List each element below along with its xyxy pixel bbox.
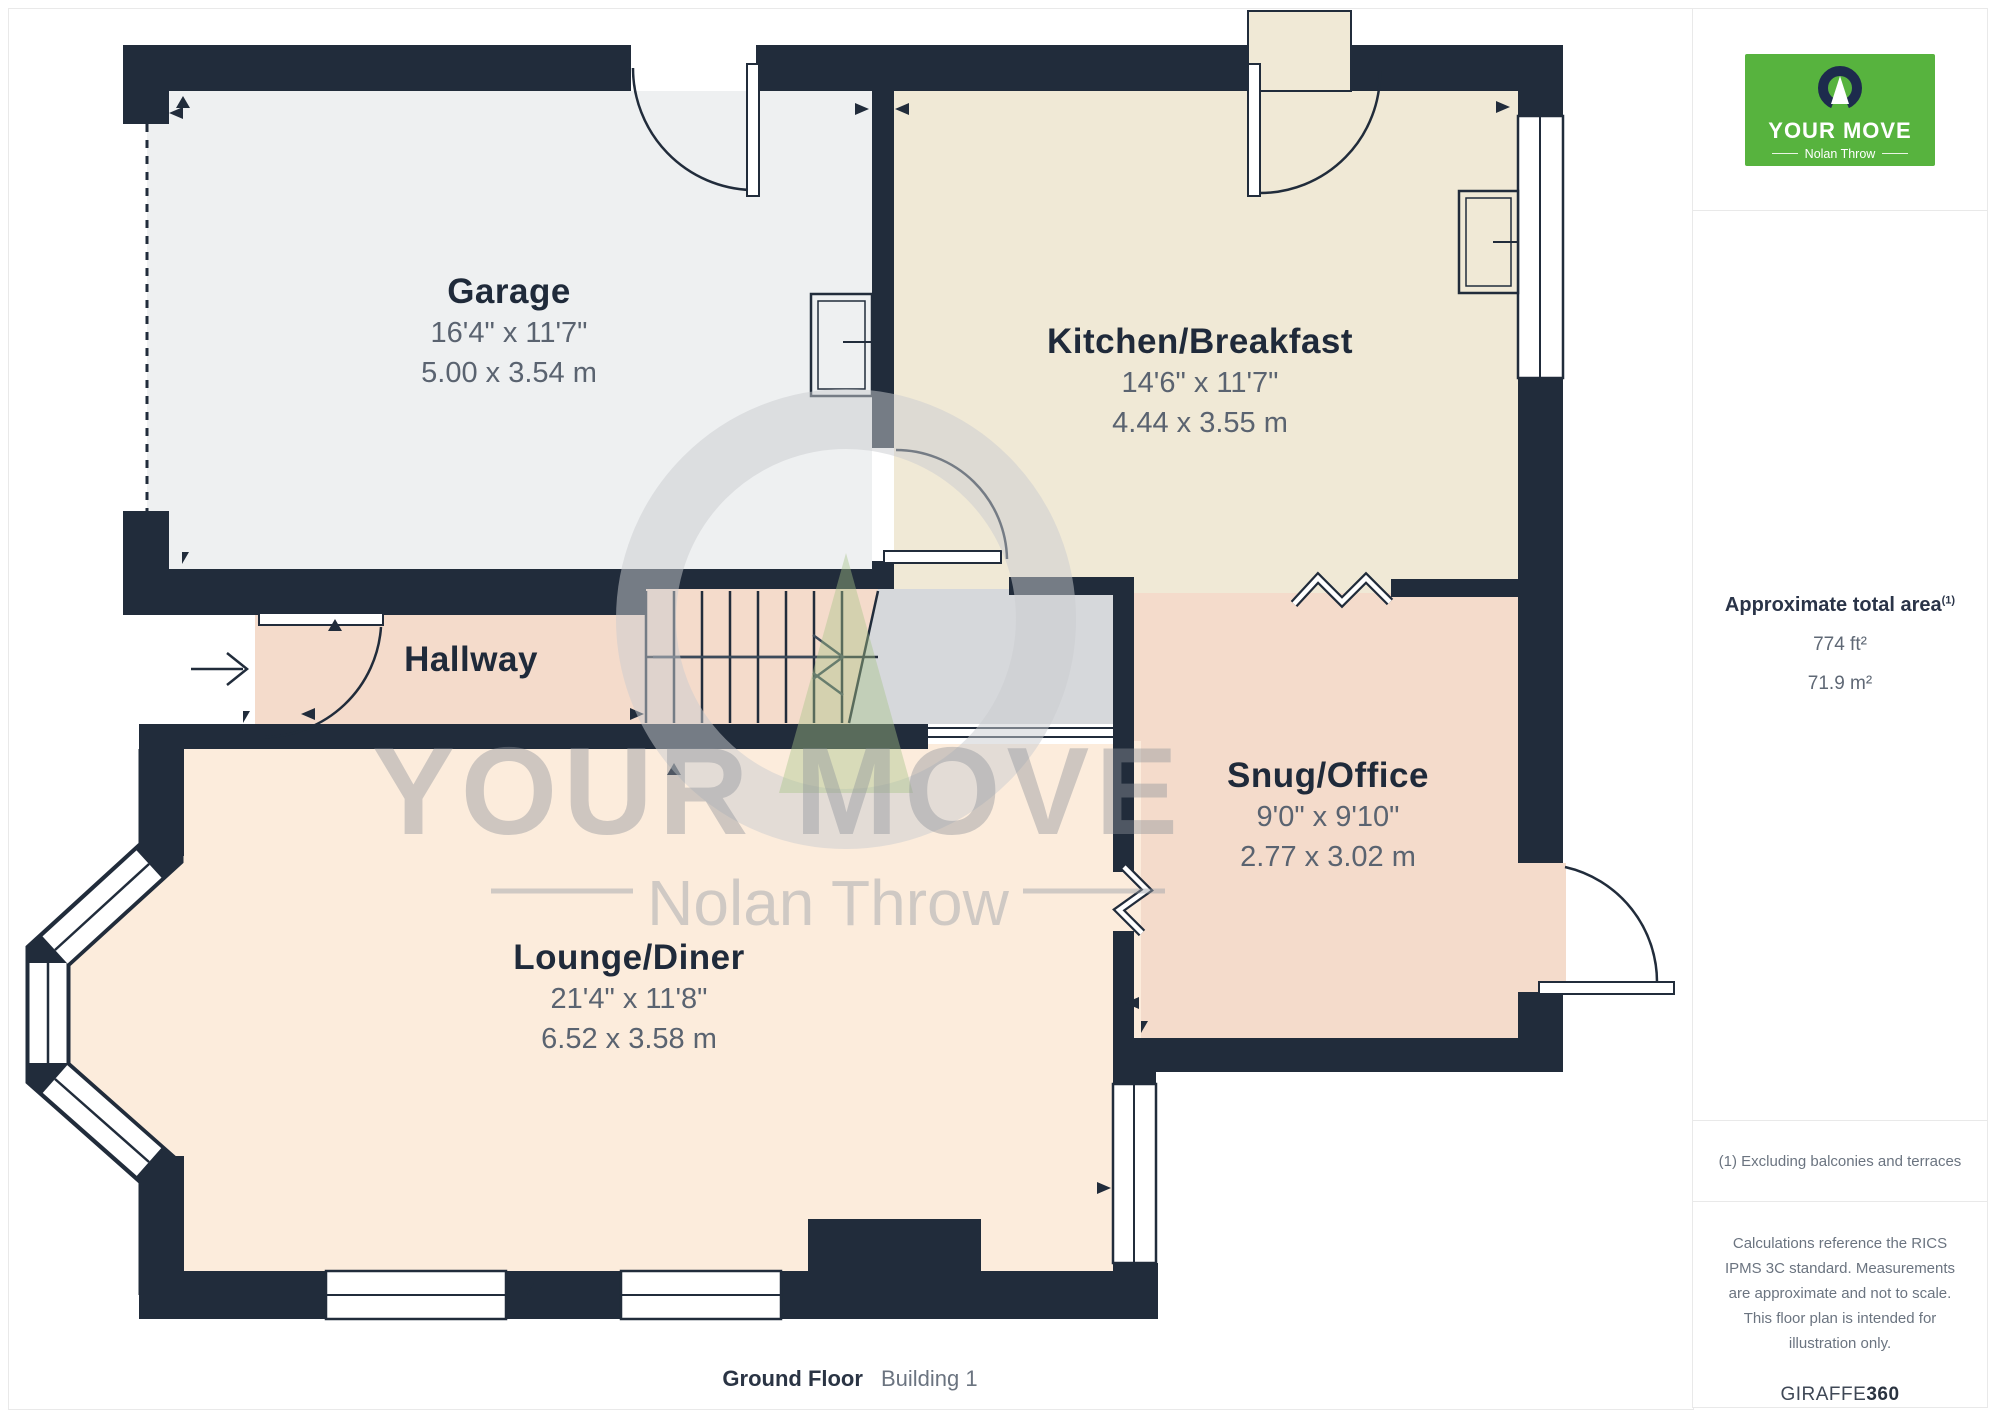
building-name: Building 1: [881, 1366, 978, 1391]
watermark-subtitle: Nolan Throw: [647, 867, 1009, 939]
kitchen-wall-fixture: [1459, 191, 1518, 293]
floor-name: Ground Floor: [722, 1366, 863, 1391]
sidebar-logo-section: YOUR MOVE Nolan Throw: [1693, 9, 1987, 211]
brand-word: GIRAFFE: [1780, 1384, 1866, 1405]
wall-garage-bottom: [123, 569, 646, 615]
total-area-metric: 71.9 m²: [1693, 673, 1987, 695]
wall-garage-left-top: [123, 45, 169, 124]
footnote-text: (1) Excluding balconies and terraces: [1719, 1153, 1962, 1170]
kitchen-window: [1518, 116, 1563, 378]
snug-door-recess: [1518, 863, 1566, 992]
snug-floor: [1134, 593, 1518, 1038]
wall-window-head: [1113, 1072, 1156, 1084]
logo-subtitle: Nolan Throw: [1805, 147, 1876, 161]
hallway-floor: [255, 613, 878, 724]
logo-subtitle-row: Nolan Throw: [1772, 147, 1909, 161]
total-area-title-text: Approximate total area: [1725, 594, 1942, 616]
agency-logo-mark-icon: [1809, 64, 1871, 116]
kitchen-door-recess: [1248, 11, 1351, 91]
info-sidebar: YOUR MOVE Nolan Throw Approximate total …: [1692, 8, 1988, 1408]
agency-logo: YOUR MOVE Nolan Throw: [1745, 54, 1935, 166]
wall-lounge-snug-lower: [1113, 931, 1134, 1038]
footer: Ground FloorBuilding 1: [8, 1366, 1692, 1392]
total-area-imperial: 774 ft²: [1693, 634, 1987, 656]
garage-floor: [147, 91, 872, 569]
garage-wall-fixture: [811, 294, 872, 396]
wall-top-kitchen-left: [756, 45, 1248, 91]
total-area-superscript: (1): [1942, 594, 1955, 606]
chimney-breast: [808, 1219, 981, 1271]
floorplan-canvas: YOUR MOVE Nolan Throw Garage 16'4" x 11'…: [8, 8, 1694, 1410]
watermark-title: YOUR MOVE: [372, 723, 1184, 861]
disclaimer-section: Calculations reference the RICS IPMS 3C …: [1693, 1201, 1987, 1406]
entrance-arrow-icon: [191, 653, 247, 685]
wall-divider-stub: [872, 561, 894, 589]
total-area-section: Approximate total area(1) 774 ft² 71.9 m…: [1693, 594, 1987, 695]
total-area-title: Approximate total area(1): [1693, 594, 1987, 617]
wall-right-corner: [1518, 45, 1563, 116]
disclaimer-text: Calculations reference the RICS IPMS 3C …: [1723, 1231, 1957, 1356]
wall-above-stairs: [646, 569, 894, 589]
floorplan-page: { "branding": { "logo_title": "YOUR MOVE…: [0, 0, 2000, 1414]
wall-kitchen-snug: [1391, 579, 1518, 597]
footnote-section: (1) Excluding balconies and terraces: [1693, 1120, 1987, 1202]
wall-right-kitchen-snug: [1518, 378, 1563, 863]
wall-top-garage: [123, 45, 631, 91]
lounge-right-window: [1113, 1084, 1156, 1263]
logo-rule-right: [1882, 153, 1908, 154]
brand-number: 360: [1866, 1384, 1899, 1405]
logo-title: YOUR MOVE: [1768, 118, 1911, 144]
lounge-bottom-window-left: [326, 1271, 506, 1319]
wall-snug-bottom: [1113, 1038, 1563, 1072]
floorplan-drawing: YOUR MOVE Nolan Throw: [9, 9, 1693, 1409]
lounge-bottom-window-right: [621, 1271, 781, 1319]
logo-rule-left: [1772, 153, 1798, 154]
giraffe360-brand: GIRAFFE360: [1693, 1384, 1987, 1406]
